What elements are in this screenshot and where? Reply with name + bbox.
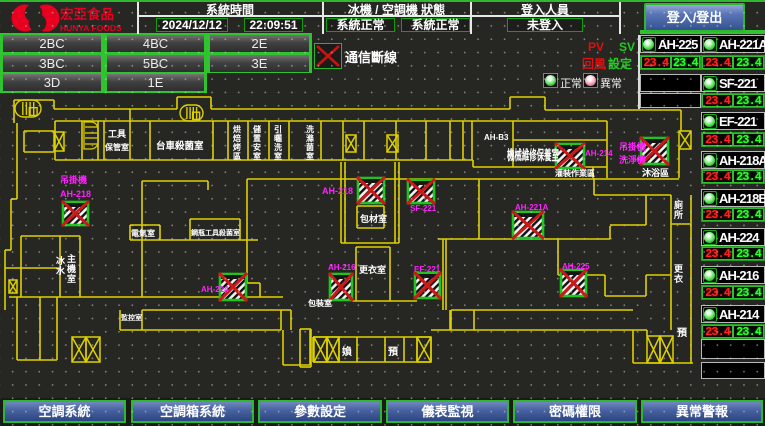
svg-text:洗淨機: 洗淨機 — [619, 154, 646, 165]
svg-text:機械維修保養室: 機械維修保養室 — [507, 146, 559, 163]
svg-text:儲置安室: 儲置安室 — [252, 124, 261, 161]
svg-text:預: 預 — [677, 327, 688, 339]
svg-text:宏亞食品: 宏亞食品 — [60, 6, 114, 22]
svg-text:AH-218: AH-218 — [322, 186, 353, 196]
svg-text:主機室: 主機室 — [67, 253, 76, 284]
svg-text:工具: 工具 — [108, 129, 126, 139]
svg-text:引曬洗室: 引曬洗室 — [274, 124, 282, 161]
svg-text:監控室: 監控室 — [121, 313, 142, 322]
svg-text:鋼瓶工具殺菌室: 鋼瓶工具殺菌室 — [190, 228, 240, 237]
svg-text:吊掛機: 吊掛機 — [60, 174, 87, 185]
svg-text:洗滌菌室: 洗滌菌室 — [306, 124, 314, 161]
svg-text:更衣: 更衣 — [674, 264, 684, 284]
svg-text:包材室: 包材室 — [359, 213, 387, 224]
svg-text:包裝室: 包裝室 — [307, 298, 332, 308]
svg-text:預: 預 — [388, 346, 399, 358]
svg-text:AH-224: AH-224 — [201, 285, 229, 294]
svg-text:EF-221: EF-221 — [414, 265, 441, 274]
svg-text:灌裝作業區: 灌裝作業區 — [555, 168, 595, 178]
svg-text:AH-225: AH-225 — [562, 262, 590, 271]
svg-text:媍: 媍 — [342, 345, 352, 358]
svg-text:沐浴區: 沐浴區 — [642, 167, 669, 178]
svg-text:烘焙烤區: 烘焙烤區 — [232, 124, 241, 161]
svg-text:廁所: 廁所 — [674, 199, 683, 220]
svg-text:台車殺菌室: 台車殺菌室 — [156, 140, 204, 152]
svg-text:電氣室: 電氣室 — [131, 228, 155, 238]
svg-text:AH-218: AH-218 — [60, 189, 91, 199]
svg-text:AH-216: AH-216 — [328, 263, 356, 272]
svg-text:冰水: 冰水 — [56, 255, 66, 276]
svg-text:AH-B3: AH-B3 — [484, 133, 509, 142]
svg-text:SF-221: SF-221 — [410, 204, 437, 213]
svg-text:AH-221A: AH-221A — [515, 203, 549, 212]
svg-text:更衣室: 更衣室 — [359, 264, 386, 275]
svg-text:保管室: 保管室 — [104, 142, 129, 152]
svg-text:HUNYA FOODS: HUNYA FOODS — [60, 23, 122, 33]
svg-text:吊掛機: 吊掛機 — [619, 141, 646, 152]
svg-text:AH-214: AH-214 — [585, 149, 613, 158]
